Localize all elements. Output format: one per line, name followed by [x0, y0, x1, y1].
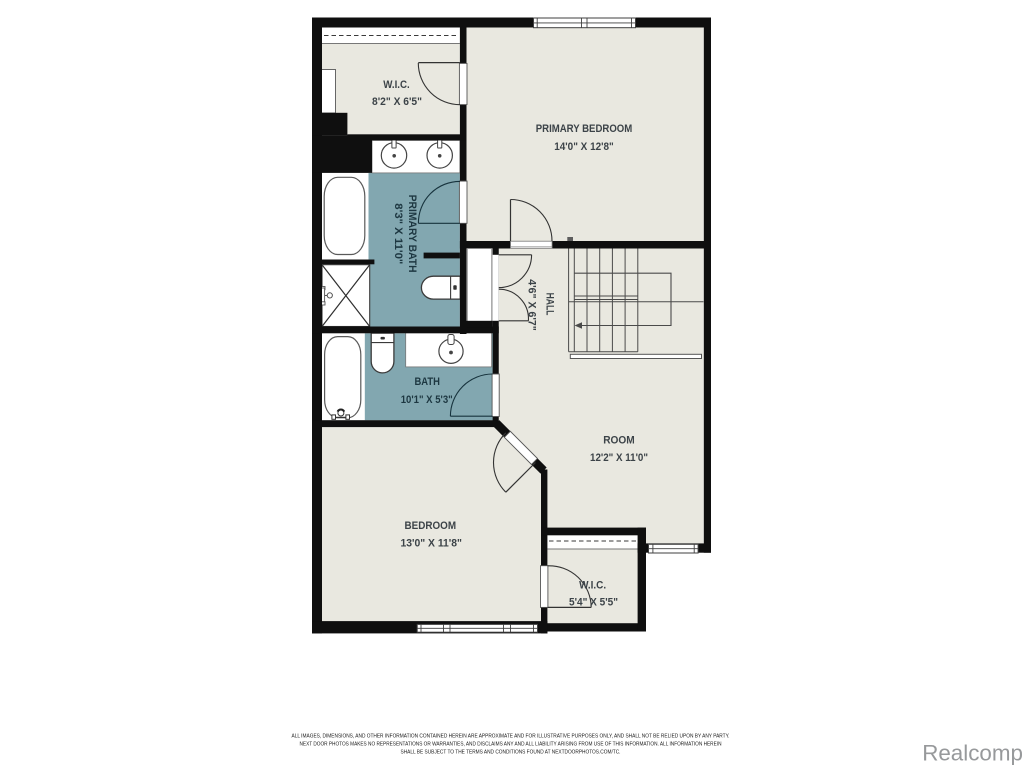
svg-text:14'0" X 12'8": 14'0" X 12'8": [554, 141, 614, 153]
svg-text:SHALL BE SUBJECT TO THE TERMS: SHALL BE SUBJECT TO THE TERMS AND CONDIT…: [401, 749, 621, 755]
svg-text:PRIMARY BEDROOM: PRIMARY BEDROOM: [536, 123, 633, 135]
svg-text:ALL IMAGES, DIMENSIONS, AND OT: ALL IMAGES, DIMENSIONS, AND OTHER INFORM…: [292, 733, 730, 739]
svg-text:4'6" X 6'7": 4'6" X 6'7": [525, 279, 537, 331]
svg-text:8'2" X 6'5": 8'2" X 6'5": [372, 96, 422, 108]
svg-text:HALL: HALL: [543, 293, 555, 316]
svg-text:12'2" X 11'0": 12'2" X 11'0": [590, 452, 648, 464]
svg-text:W.I.C.: W.I.C.: [579, 580, 606, 592]
svg-text:10'1" X 5'3": 10'1" X 5'3": [401, 394, 453, 406]
svg-text:BATH: BATH: [414, 376, 440, 388]
svg-text:13'0" X 11'8": 13'0" X 11'8": [400, 537, 462, 549]
svg-text:NEXT DOOR PHOTOS MAKES NO REPR: NEXT DOOR PHOTOS MAKES NO REPRESENTATION…: [300, 741, 722, 747]
svg-text:BEDROOM: BEDROOM: [405, 520, 457, 532]
svg-text:W.I.C.: W.I.C.: [383, 79, 410, 91]
svg-text:5'4" X 5'5": 5'4" X 5'5": [569, 596, 618, 608]
svg-text:ROOM: ROOM: [603, 434, 635, 446]
svg-text:8'3" X 11'0": 8'3" X 11'0": [392, 203, 404, 264]
svg-text:Realcomp: Realcomp: [922, 741, 1023, 766]
svg-text:PRIMARY BATH: PRIMARY BATH: [406, 195, 418, 273]
